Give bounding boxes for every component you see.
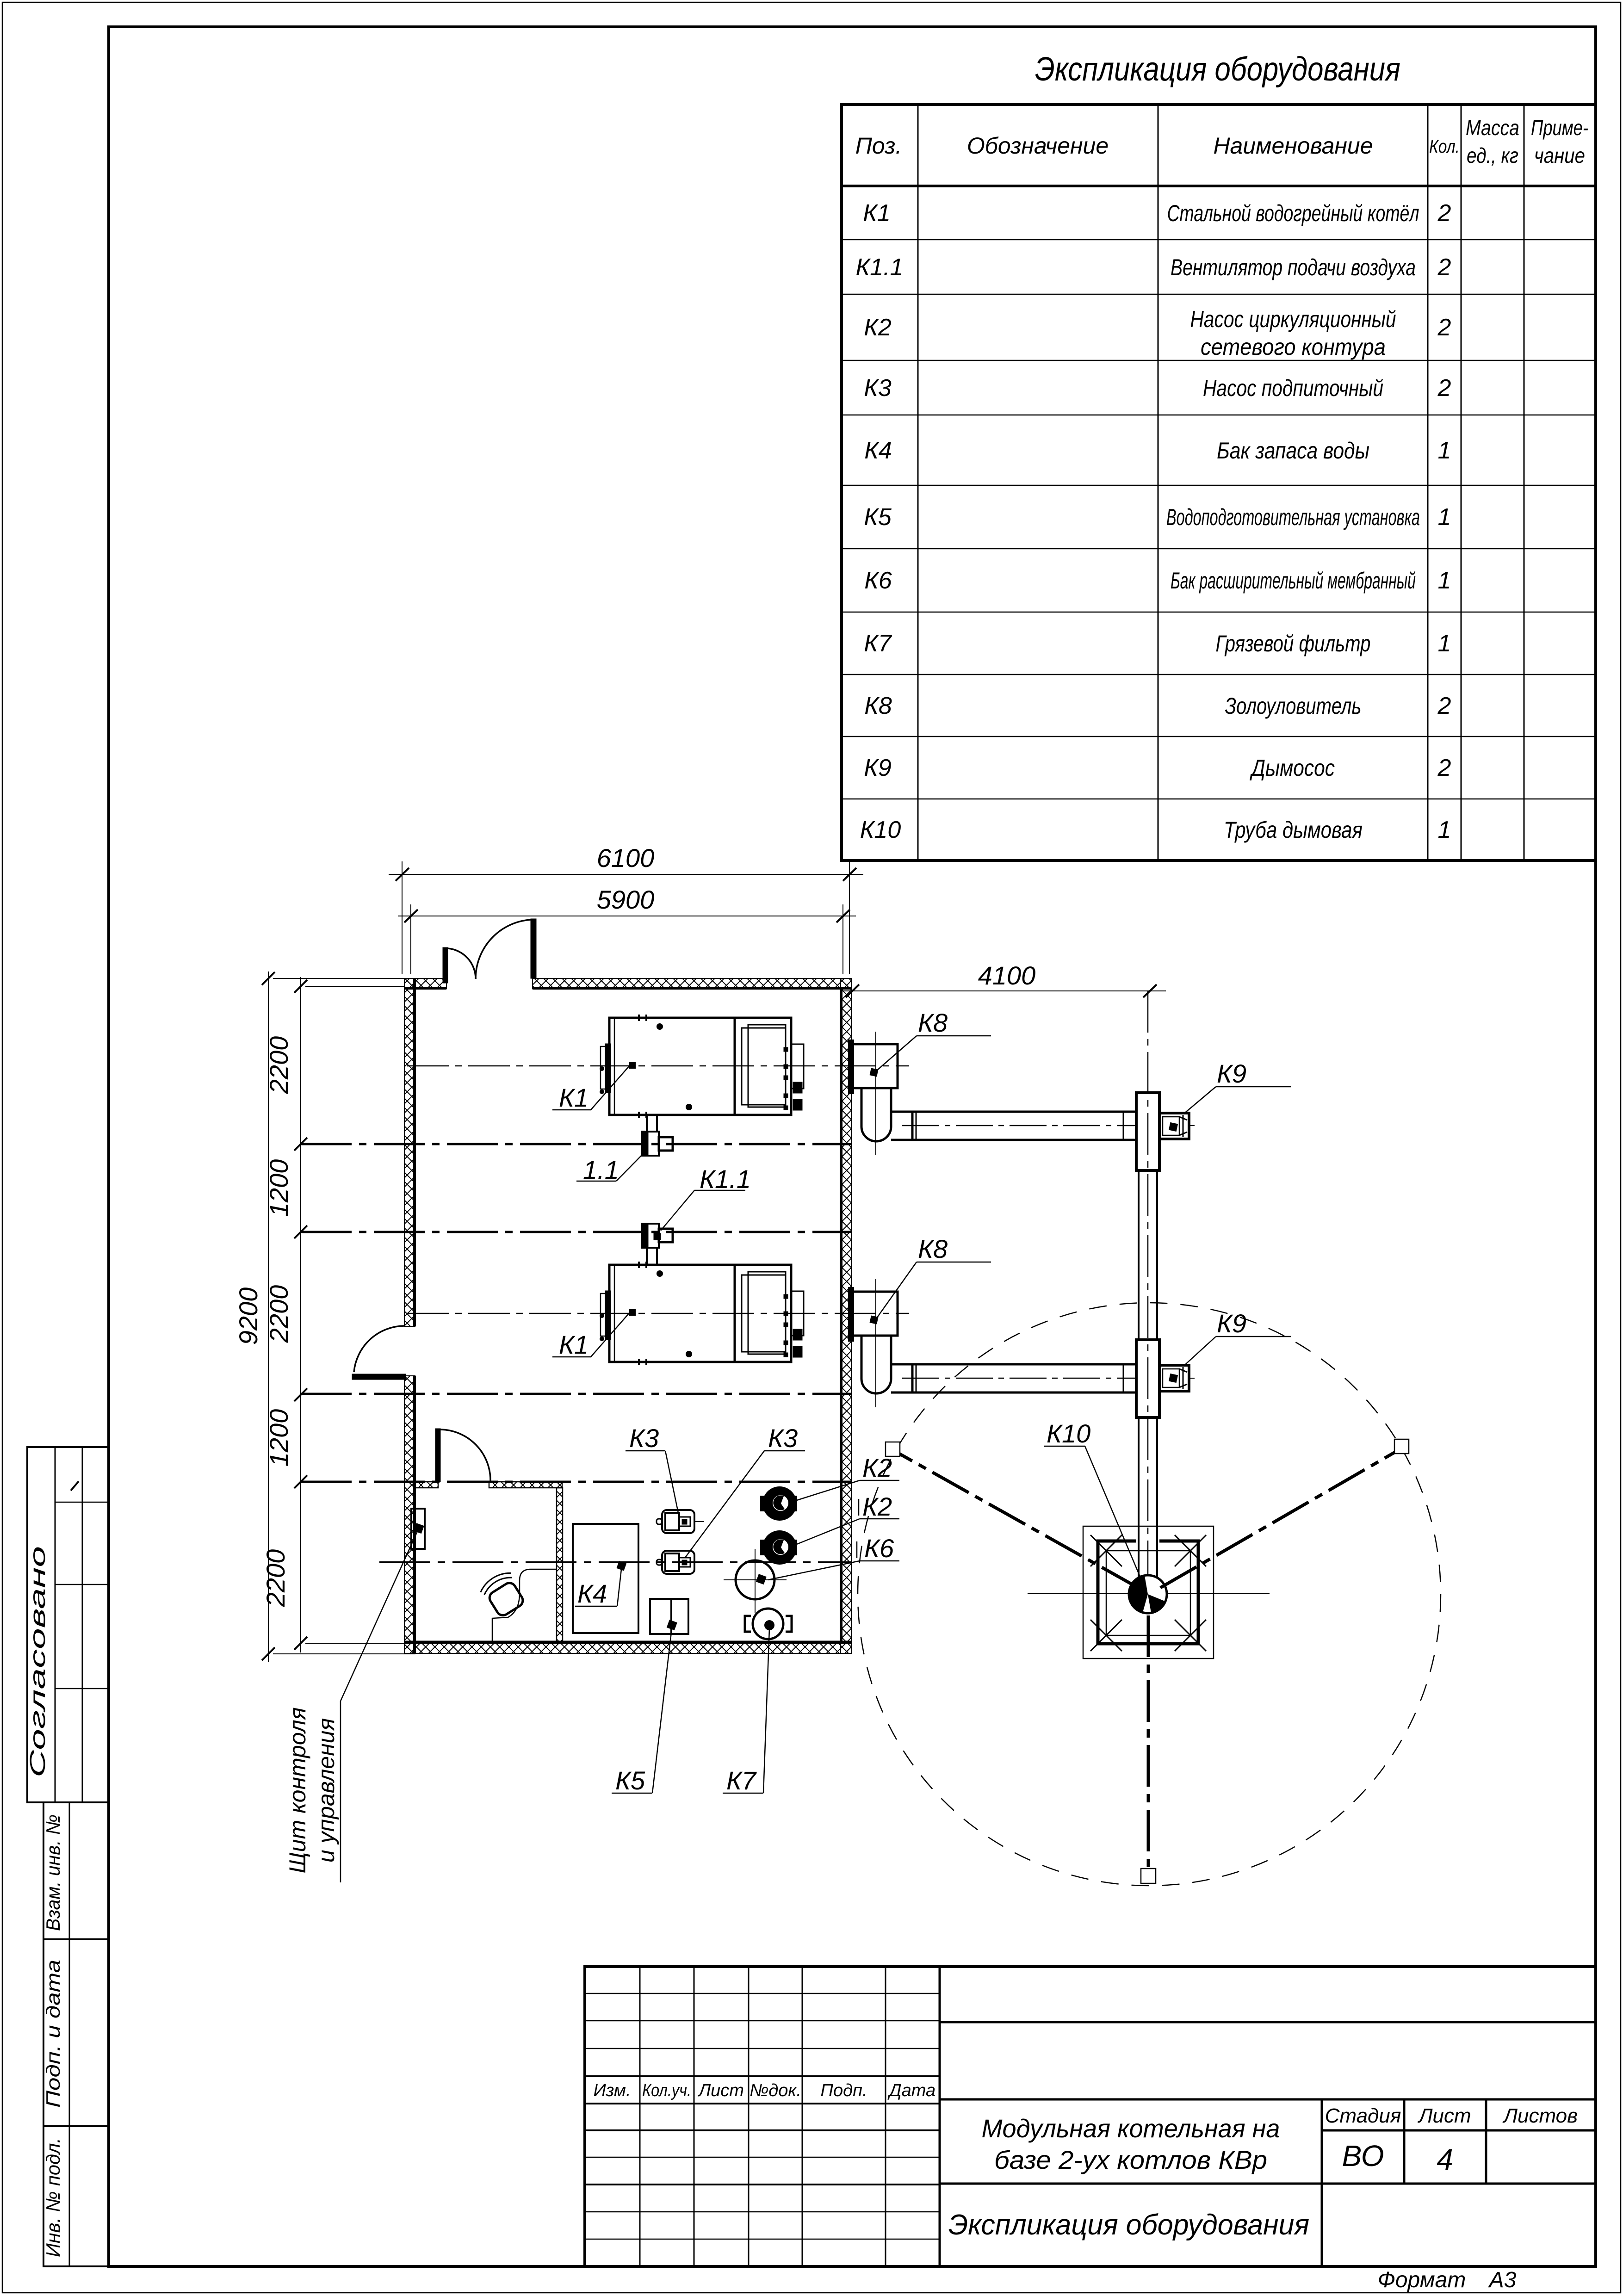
svg-text:9200: 9200 <box>234 1287 263 1345</box>
svg-text:5900: 5900 <box>597 885 655 914</box>
svg-text:К4: К4 <box>577 1579 607 1608</box>
svg-text:К5: К5 <box>615 1766 645 1795</box>
svg-text:2: 2 <box>1437 693 1451 719</box>
svg-text:Поз.: Поз. <box>855 133 902 159</box>
svg-text:Инв. № подл.: Инв. № подл. <box>42 2138 64 2257</box>
svg-text:К8: К8 <box>918 1234 948 1263</box>
svg-text:К5: К5 <box>864 504 892 531</box>
svg-text:2200: 2200 <box>261 1549 290 1608</box>
svg-text:Стальной водогрейный котёл: Стальной водогрейный котёл <box>1167 200 1419 226</box>
svg-text:К1: К1 <box>863 200 891 227</box>
svg-text:К6: К6 <box>864 1534 894 1563</box>
svg-text:К2: К2 <box>862 1453 892 1482</box>
svg-text:1: 1 <box>1438 817 1451 843</box>
svg-text:Труба дымовая: Труба дымовая <box>1224 817 1363 843</box>
svg-text:№док.: №док. <box>750 2081 801 2100</box>
svg-text:базе 2-ух котлов КВр: базе 2-ух котлов КВр <box>994 2145 1267 2174</box>
svg-text:Согласовано: Согласовано <box>25 1546 50 1777</box>
svg-text:К7: К7 <box>864 630 892 657</box>
svg-text:Экспликация оборудования: Экспликация оборудования <box>948 2209 1309 2241</box>
svg-text:К7: К7 <box>726 1766 757 1795</box>
svg-text:К1: К1 <box>559 1083 588 1112</box>
svg-text:К2: К2 <box>864 314 892 341</box>
svg-text:ед., кг: ед., кг <box>1467 143 1518 167</box>
svg-text:Водоподготовительная установка: Водоподготовительная установка <box>1166 504 1420 530</box>
svg-text:1: 1 <box>1438 504 1451 531</box>
svg-text:К4: К4 <box>864 437 892 464</box>
svg-text:Подп. и дата: Подп. и дата <box>42 1960 64 2108</box>
svg-text:Взам. инв. №: Взам. инв. № <box>42 1814 64 1931</box>
svg-text:К1.1: К1.1 <box>700 1164 751 1194</box>
svg-text:1: 1 <box>1438 567 1451 594</box>
svg-text:Вентилятор подачи воздуха: Вентилятор подачи воздуха <box>1171 254 1416 280</box>
svg-text:2: 2 <box>1437 314 1451 341</box>
svg-text:Лист: Лист <box>1417 2104 1471 2127</box>
svg-text:Листов: Листов <box>1502 2104 1578 2127</box>
svg-text:1.1: 1.1 <box>583 1155 619 1184</box>
svg-text:Бак запаса воды: Бак запаса воды <box>1217 438 1369 464</box>
svg-text:1: 1 <box>1438 437 1451 464</box>
svg-text:Лист: Лист <box>697 2081 744 2100</box>
svg-text:Щит контроля: Щит контроля <box>285 1708 310 1874</box>
svg-text:Экспликация оборудования: Экспликация оборудования <box>1035 51 1400 88</box>
svg-text:А3: А3 <box>1488 2268 1517 2292</box>
svg-text:6100: 6100 <box>597 843 655 873</box>
svg-text:2: 2 <box>1437 254 1451 281</box>
svg-text:Кол.: Кол. <box>1429 136 1460 157</box>
svg-text:К9: К9 <box>1217 1309 1246 1338</box>
svg-text:Обозначение: Обозначение <box>967 133 1109 159</box>
svg-text:1200: 1200 <box>264 1159 293 1217</box>
svg-text:К1.1: К1.1 <box>856 254 904 281</box>
svg-text:Изм.: Изм. <box>593 2081 631 2100</box>
svg-text:К10: К10 <box>860 817 901 843</box>
svg-text:Золоуловитель: Золоуловитель <box>1225 693 1362 719</box>
svg-text:ВО: ВО <box>1342 2139 1384 2172</box>
svg-text:Дымосос: Дымосос <box>1250 755 1335 781</box>
svg-text:сетевого контура: сетевого контура <box>1201 334 1386 360</box>
svg-text:Масса: Масса <box>1466 116 1519 140</box>
svg-text:Дата: Дата <box>887 2081 935 2100</box>
svg-text:К9: К9 <box>1217 1059 1246 1088</box>
svg-text:4100: 4100 <box>978 961 1036 990</box>
svg-text:К8: К8 <box>918 1008 948 1037</box>
svg-text:Насос циркуляционный: Насос циркуляционный <box>1190 306 1396 332</box>
svg-text:Грязевой фильтр: Грязевой фильтр <box>1216 631 1371 656</box>
svg-text:и управления: и управления <box>313 1718 339 1863</box>
svg-text:Кол.уч.: Кол.уч. <box>642 2081 691 2100</box>
svg-text:1200: 1200 <box>264 1409 293 1467</box>
svg-text:К6: К6 <box>864 567 892 594</box>
svg-text:Формат: Формат <box>1378 2268 1466 2292</box>
svg-text:К3: К3 <box>864 375 892 402</box>
svg-text:Подп.: Подп. <box>820 2081 867 2100</box>
svg-text:2200: 2200 <box>264 1036 293 1095</box>
svg-text:Наименование: Наименование <box>1213 133 1373 159</box>
svg-text:К9: К9 <box>864 755 892 781</box>
svg-text:К3: К3 <box>629 1423 659 1453</box>
svg-text:Стадия: Стадия <box>1325 2104 1401 2127</box>
svg-text:2: 2 <box>1437 755 1451 781</box>
svg-text:К10: К10 <box>1047 1419 1090 1448</box>
svg-text:К8: К8 <box>864 693 892 719</box>
svg-text:2: 2 <box>1437 200 1451 227</box>
svg-text:К3: К3 <box>768 1423 798 1453</box>
svg-text:Бак расширительный мембранный: Бак расширительный мембранный <box>1171 568 1416 594</box>
svg-text:4: 4 <box>1437 2143 1453 2176</box>
svg-text:Насос подпиточный: Насос подпиточный <box>1203 375 1383 401</box>
svg-text:Модульная котельная на: Модульная котельная на <box>982 2114 1280 2143</box>
svg-text:К2: К2 <box>862 1492 892 1521</box>
svg-text:2: 2 <box>1437 375 1451 402</box>
svg-text:1: 1 <box>1438 630 1451 657</box>
svg-text:К1: К1 <box>559 1330 588 1359</box>
svg-text:Приме-: Приме- <box>1531 116 1588 140</box>
svg-text:2200: 2200 <box>264 1285 293 1343</box>
svg-text:чание: чание <box>1534 143 1585 167</box>
